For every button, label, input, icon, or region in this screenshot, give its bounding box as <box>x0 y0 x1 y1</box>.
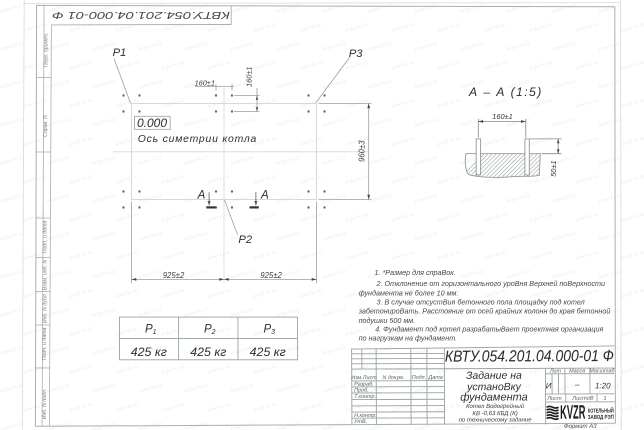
svg-text:КВТУ.054.201.04.000-01 Ф: КВТУ.054.201.04.000-01 Ф <box>52 9 230 20</box>
svg-text:50±1: 50±1 <box>549 160 558 176</box>
svg-text:2. Отклонение от горизонтально: 2. Отклонение от горизонтального уроВня … <box>376 279 606 288</box>
svg-text:КВТУ.054.201.04.000-01 Ф: КВТУ.054.201.04.000-01 Ф <box>445 348 614 366</box>
svg-text:160±1: 160±1 <box>195 79 216 88</box>
svg-text:Подп.: Подп. <box>412 375 426 381</box>
svg-text:Подп. и дата: Подп. и дата <box>43 221 49 254</box>
svg-text:Инб. N дубл.: Инб. N дубл. <box>42 293 48 323</box>
svg-text:160±1: 160±1 <box>492 112 513 121</box>
svg-text:КОТЕЛЬНЫЙ: КОТЕЛЬНЫЙ <box>588 406 614 414</box>
svg-text:1: 1 <box>603 396 606 402</box>
svg-text:925±2: 925±2 <box>163 271 185 280</box>
svg-text:Котел Водогрейный: Котел Водогрейный <box>466 403 525 410</box>
svg-text:Лит: Лит <box>549 368 562 374</box>
svg-text:Р1: Р1 <box>113 47 127 59</box>
svg-text:Т.контр.: Т.контр. <box>354 394 376 400</box>
svg-text:фундамента не более 10 мм.: фундамента не более 10 мм. <box>359 289 459 298</box>
svg-text:Взам. инб. N: Взам. инб. N <box>43 260 49 291</box>
svg-text:фундамента: фундамента <box>460 391 528 403</box>
svg-text:425 кг: 425 кг <box>190 345 226 359</box>
svg-text:1:20: 1:20 <box>595 381 611 390</box>
svg-text:Перв. примен.: Перв. примен. <box>43 33 49 67</box>
svg-text:960±3: 960±3 <box>358 140 367 162</box>
svg-text:N докум.: N докум. <box>383 375 405 381</box>
svg-text:4. Фундамент под котел разраба: 4. Фундамент под котел разрабатыВает про… <box>375 324 603 333</box>
svg-text:Задание на: Задание на <box>466 370 522 382</box>
svg-text:Масштаб: Масштаб <box>589 368 615 374</box>
svg-text:1. *Размер для спраВок.: 1. *Размер для спраВок. <box>375 268 456 277</box>
svg-text:Дата: Дата <box>428 375 443 381</box>
svg-text:Инб. N подл.: Инб. N подл. <box>42 389 48 420</box>
svg-text:по техническому задание: по техническому задание <box>459 417 533 423</box>
svg-text:Р3: Р3 <box>349 48 363 60</box>
svg-text:0.000: 0.000 <box>137 116 167 130</box>
svg-text:Масса: Масса <box>569 368 585 374</box>
svg-text:А: А <box>260 189 269 201</box>
svg-text:Р2: Р2 <box>238 234 252 246</box>
svg-text:А – А (1:5): А – А (1:5) <box>468 85 543 99</box>
svg-text:А: А <box>197 189 206 201</box>
svg-text:Подп. и дата: Подп. и дата <box>42 328 48 361</box>
svg-text:3. В случае отсустВия бетонног: 3. В случае отсустВия бетонного пола пло… <box>377 298 585 307</box>
svg-text:УтВ.: УтВ. <box>353 419 367 425</box>
svg-text:925±2: 925±2 <box>260 271 282 280</box>
svg-text:425 кг: 425 кг <box>131 345 167 359</box>
svg-text:425 кг: 425 кг <box>250 345 286 359</box>
svg-text:ЗАВОД РЭП: ЗАВОД РЭП <box>588 415 614 421</box>
svg-text:Ось симетрии котла: Ось симетрии котла <box>138 134 257 145</box>
svg-text:И: И <box>546 382 552 391</box>
svg-text:160±1: 160±1 <box>245 67 254 88</box>
svg-text:забетонироВать. Расстояние от: забетонироВать. Расстояние от осей крайн… <box>358 307 611 316</box>
svg-text:KVZR: KVZR <box>560 402 585 424</box>
svg-text:–: – <box>574 380 580 389</box>
svg-text:Справ. N: Справ. N <box>43 115 49 137</box>
svg-text:КВ -0,63 КБД (К): КВ -0,63 КБД (К) <box>472 411 517 417</box>
svg-text:Изм.Лист: Изм.Лист <box>351 375 377 381</box>
svg-text:Формат А3: Формат А3 <box>564 424 598 430</box>
svg-text:Проб.: Проб. <box>354 388 368 394</box>
svg-text:по нагрузкам на фундамент.: по нагрузкам на фундамент. <box>359 333 458 342</box>
